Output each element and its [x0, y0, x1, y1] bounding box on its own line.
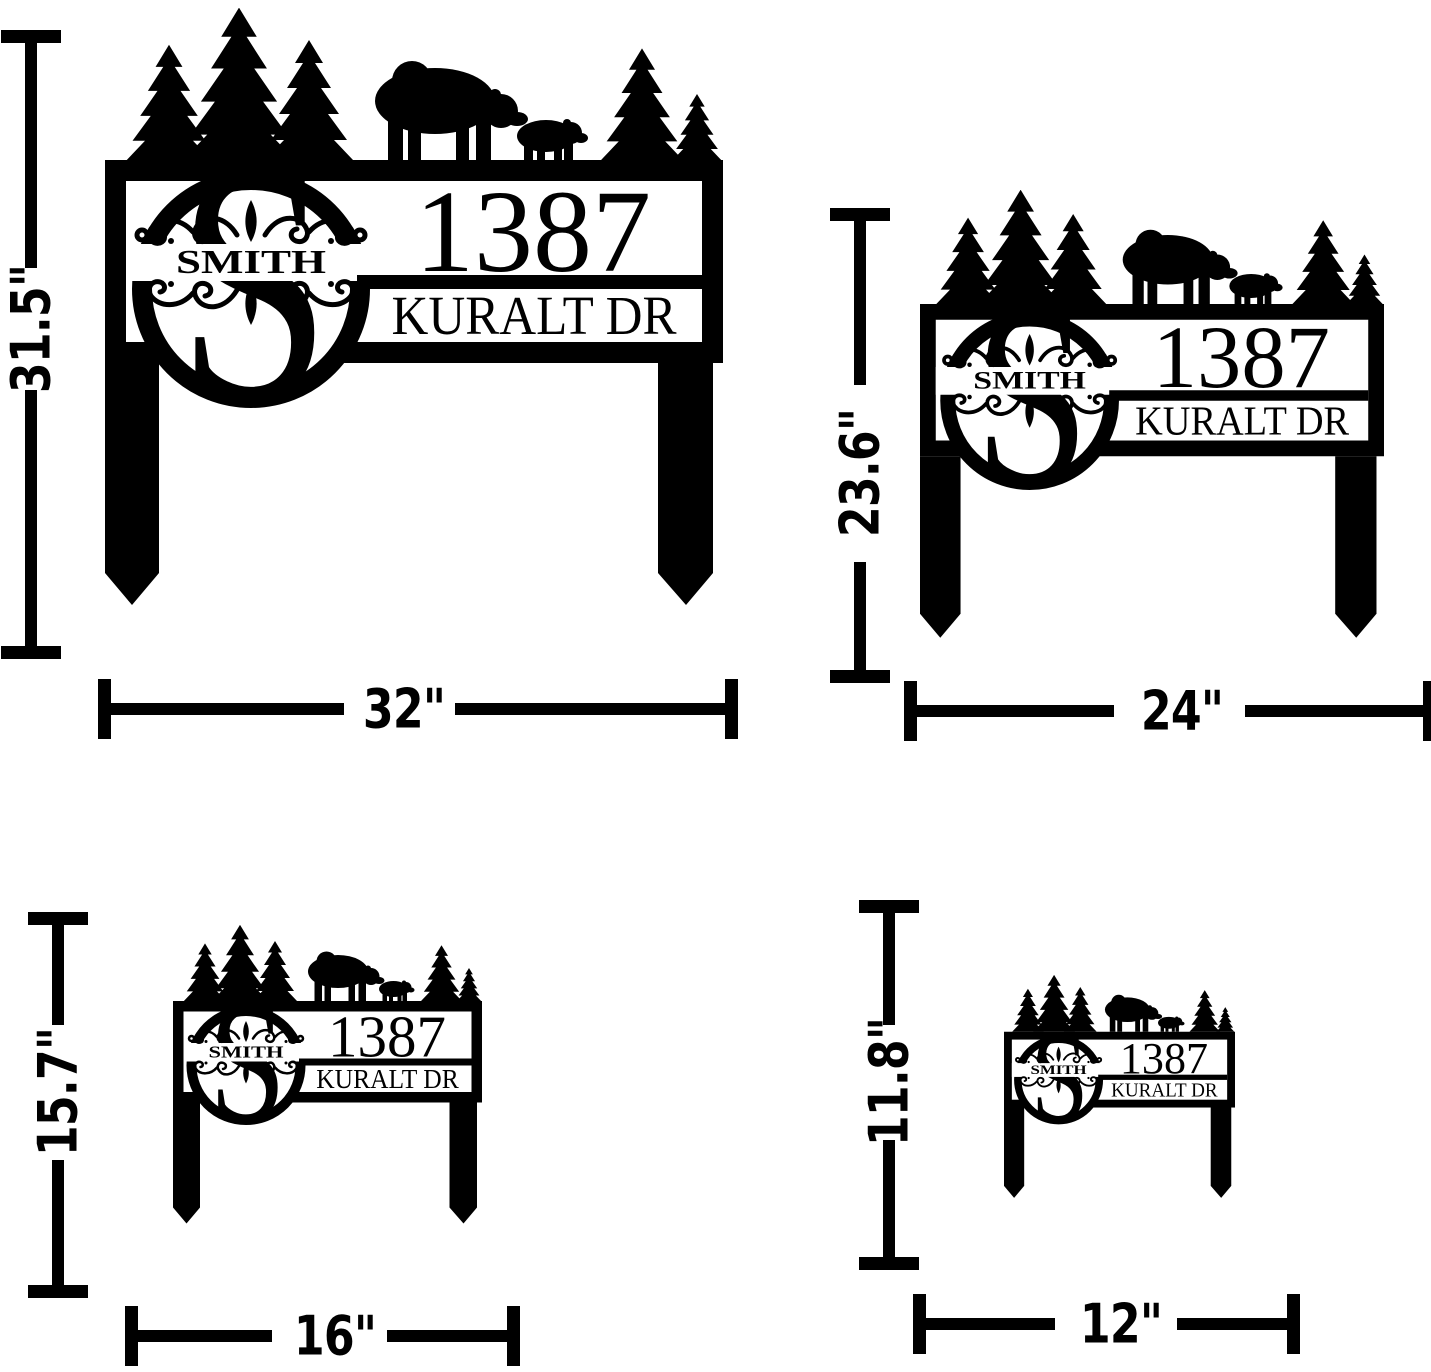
width-dimension-12in: 12": [913, 1294, 1300, 1354]
dimension-line: [52, 1160, 64, 1285]
height-dimension-32in: 31.5": [1, 30, 61, 659]
dimension-line: [883, 1140, 895, 1257]
height-label: 23.6": [829, 409, 892, 537]
dimension-line: [917, 705, 1114, 717]
dimension-tick: [830, 670, 890, 683]
dimension-line: [883, 913, 895, 1025]
height-dimension-12in: 11.8": [859, 900, 919, 1270]
size-chart: 1387 KURALT DR S SMITH: [0, 0, 1431, 1372]
width-dimension-24in: 24": [904, 681, 1431, 741]
dimension-tick: [904, 681, 917, 741]
width-dimension-32in: 32": [98, 679, 738, 739]
dimension-tick: [1423, 681, 1431, 741]
width-label: 12": [1080, 1293, 1162, 1356]
dimension-tick: [1287, 1294, 1300, 1354]
height-label: 31.5": [0, 265, 63, 393]
width-label: 16": [294, 1305, 376, 1368]
sign-variant-32in: [105, 8, 723, 608]
sign-variant-24in: [920, 190, 1384, 640]
sign-variant-16in: [173, 925, 482, 1225]
dimension-tick: [830, 208, 890, 221]
dimension-line: [854, 562, 866, 670]
dimension-line: [926, 1318, 1055, 1330]
height-label: 15.7": [27, 1028, 90, 1156]
dimension-line: [138, 1330, 272, 1342]
dimension-line: [387, 1330, 507, 1342]
width-dimension-16in: 16": [125, 1306, 520, 1366]
dimension-tick: [1, 646, 61, 659]
dimension-line: [1177, 1318, 1287, 1330]
height-label: 11.8": [858, 1018, 921, 1146]
dimension-tick: [125, 1306, 138, 1366]
dimension-tick: [859, 900, 919, 913]
dimension-tick: [28, 1285, 88, 1298]
width-label: 24": [1141, 680, 1223, 743]
dimension-tick: [98, 679, 111, 739]
dimension-tick: [725, 679, 738, 739]
dimension-tick: [28, 912, 88, 925]
dimension-line: [25, 43, 37, 268]
dimension-line: [854, 221, 866, 385]
dimension-tick: [859, 1257, 919, 1270]
dimension-line: [25, 390, 37, 646]
dimension-tick: [507, 1306, 520, 1366]
width-label: 32": [363, 678, 445, 741]
sign-variant-12in: [1004, 975, 1235, 1199]
dimension-line: [455, 703, 725, 715]
dimension-tick: [1, 30, 61, 43]
height-dimension-24in: 23.6": [830, 208, 890, 683]
dimension-line: [52, 925, 64, 1025]
dimension-line: [111, 703, 344, 715]
dimension-tick: [913, 1294, 926, 1354]
dimension-line: [1245, 705, 1423, 717]
height-dimension-16in: 15.7": [28, 912, 88, 1298]
